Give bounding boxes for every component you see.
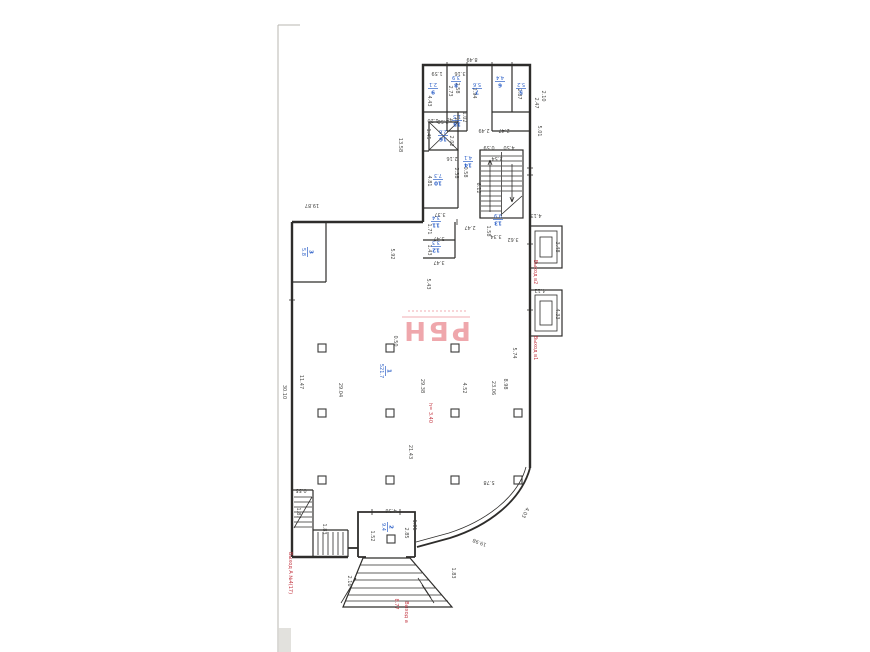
dimension-label: 4.36 xyxy=(385,507,396,513)
dimension-label: 1.43 xyxy=(426,244,432,255)
svg-text:14: 14 xyxy=(464,162,472,168)
svg-text:9.4: 9.4 xyxy=(380,523,386,531)
dimension-label: 2.38 xyxy=(453,167,459,178)
room-label: 151.5 xyxy=(452,113,462,127)
dimension-label: 2.85 xyxy=(403,527,409,538)
dimension-label: 8.49 xyxy=(466,56,477,62)
dimension-label: 30.10 xyxy=(281,385,287,399)
dimension-label: 4.13 xyxy=(530,212,541,218)
red-annotation: Выход а xyxy=(403,601,409,623)
red-annotation: Выход А №4(17) xyxy=(287,552,293,594)
svg-text:1: 1 xyxy=(386,369,392,373)
walls-upper-block xyxy=(293,65,530,282)
svg-text:3.3: 3.3 xyxy=(432,239,440,245)
svg-text:4.4: 4.4 xyxy=(496,74,504,80)
room-label: 1521.7 xyxy=(378,364,392,378)
corner-staircase xyxy=(292,490,348,557)
dimension-label: 29.38 xyxy=(419,379,425,393)
svg-text:521.7: 521.7 xyxy=(378,364,384,378)
red-annotation: Выход в1 xyxy=(532,336,538,361)
svg-text:7.3: 7.3 xyxy=(434,172,442,178)
dimension-label: 1.20 xyxy=(427,117,438,123)
dimension-label: 0.50 xyxy=(392,335,398,346)
dimension-label: 5.92 xyxy=(389,248,395,259)
dimension-label: 1.45 xyxy=(425,128,431,139)
svg-text:10: 10 xyxy=(434,180,442,186)
svg-text:2.1: 2.1 xyxy=(429,81,437,87)
hall-columns xyxy=(318,344,522,543)
svg-text:5.2: 5.2 xyxy=(517,81,525,87)
svg-text:6: 6 xyxy=(498,82,502,88)
dimension-label: 2.47 xyxy=(533,97,539,108)
svg-text:13: 13 xyxy=(494,220,502,226)
dimension-label: 2.54 xyxy=(491,155,502,161)
dimension-label: 2.58 xyxy=(437,118,448,124)
dimension-label: 1.71 xyxy=(426,223,432,234)
room-label: 123.3 xyxy=(431,239,441,253)
svg-text:5.6: 5.6 xyxy=(473,81,481,87)
dimension-label: 6.12 xyxy=(475,182,481,193)
dimension-label: 4.12 xyxy=(534,287,545,293)
dimension-label: 2.47 xyxy=(498,127,509,133)
column-marker xyxy=(386,409,394,417)
svg-text:2.6: 2.6 xyxy=(439,128,447,134)
dimension-label: 11.47 xyxy=(298,375,304,389)
dimension-label: 2.73 xyxy=(447,85,453,96)
column-marker xyxy=(386,476,394,484)
svg-text:9: 9 xyxy=(431,89,435,95)
svg-text:7: 7 xyxy=(475,89,479,95)
room-label: 144.1 xyxy=(463,154,473,168)
stair-arrow-down-icon xyxy=(510,164,514,202)
dimension-label: 4.81 xyxy=(426,175,432,186)
svg-text:2: 2 xyxy=(388,525,394,529)
scanned-floor-plan-page: РБН 8.4913.5819.8730.1011.471.593.164.43… xyxy=(0,0,870,652)
room-label: 162.6 xyxy=(438,128,448,142)
red-stamp: РБН xyxy=(401,311,471,345)
column-marker xyxy=(451,409,459,417)
svg-text:3.9: 3.9 xyxy=(452,74,460,80)
dimension-label: 29.04 xyxy=(337,383,343,397)
dimension-label: 19.98 xyxy=(472,537,488,548)
floor-plan-svg: РБН 8.4913.5819.8730.1011.471.593.164.43… xyxy=(0,0,870,652)
dimension-label: 13.58 xyxy=(397,138,403,152)
red-annotations: h= 3.408.77Выход аВыход А №4(17)Выход в2… xyxy=(287,260,538,623)
dimension-label: 0.55 xyxy=(295,487,306,493)
column-marker xyxy=(514,409,522,417)
dimension-label: 1.83 xyxy=(450,567,456,578)
dimension-label: 8.98 xyxy=(502,378,508,389)
svg-text:9.9: 9.9 xyxy=(494,212,502,218)
dimension-label: 1.59 xyxy=(431,70,442,76)
room-label: 35.8 xyxy=(300,247,314,257)
room-label: 92.1 xyxy=(428,81,438,95)
dimension-label: 2.47 xyxy=(464,224,475,230)
scan-smudge xyxy=(278,628,291,652)
stamp-text: РБН xyxy=(401,315,471,345)
dimension-label: 2.49 xyxy=(478,127,489,133)
red-annotation: 8.77 xyxy=(393,598,399,609)
dimension-label: 2.10 xyxy=(540,90,546,101)
svg-text:5: 5 xyxy=(519,89,523,95)
room-label: 29.4 xyxy=(380,522,394,532)
dimension-label: 1.52 xyxy=(369,530,375,541)
dimension-label: 4.03 xyxy=(520,506,530,519)
svg-text:15: 15 xyxy=(453,121,461,127)
dimension-label: 2.02 xyxy=(448,135,454,146)
dimension-label: 5.78 xyxy=(483,479,494,485)
room-label: 107.3 xyxy=(433,172,443,186)
svg-text:12: 12 xyxy=(432,247,440,253)
column-marker xyxy=(318,409,326,417)
dimension-label: 4.52 xyxy=(461,382,467,393)
red-annotation: Выход в2 xyxy=(532,260,538,285)
dimension-label: 5.43 xyxy=(425,278,431,289)
svg-text:16: 16 xyxy=(439,136,447,142)
svg-text:1.5: 1.5 xyxy=(453,113,461,119)
column-marker xyxy=(387,535,395,543)
dimension-label: 19.87 xyxy=(305,202,319,208)
room-label: 64.4 xyxy=(495,74,505,88)
dimension-label: 3.48 xyxy=(554,241,560,252)
dimension-label: 2.16 xyxy=(446,155,457,161)
dimension-label: 3.34 xyxy=(490,233,501,239)
dimension-label: 1.58 xyxy=(485,225,491,236)
room-number-labels: 1521.729.435.892.183.975.664.455.2151.51… xyxy=(300,74,526,532)
column-marker xyxy=(318,344,326,352)
dimension-label: 5.74 xyxy=(511,347,517,358)
svg-text:3.4: 3.4 xyxy=(432,214,440,220)
dimension-label: 2.16 xyxy=(346,575,352,586)
svg-text:5.8: 5.8 xyxy=(300,248,306,256)
dimension-label: 21.43 xyxy=(407,445,413,459)
dimension-label: 3.62 xyxy=(507,236,518,242)
svg-text:4.1: 4.1 xyxy=(464,154,472,160)
dimension-label: 5.01 xyxy=(536,125,542,136)
svg-text:3: 3 xyxy=(308,250,314,254)
room-label: 139.9 xyxy=(493,212,503,226)
dimension-label: 4.33 xyxy=(554,308,560,319)
column-marker xyxy=(318,476,326,484)
dimension-label: 1.87 xyxy=(295,507,301,518)
svg-text:8: 8 xyxy=(454,82,458,88)
dimension-label: 1.01 xyxy=(411,519,417,530)
dimension-label: 4.50 xyxy=(503,144,514,150)
dimension-label: 3.47 xyxy=(433,259,444,265)
room-label: 113.4 xyxy=(431,214,441,228)
dimension-label: 4.43 xyxy=(426,95,432,106)
dimension-label: 1.83 xyxy=(321,523,327,534)
dimension-label: 23.06 xyxy=(490,381,496,395)
column-marker xyxy=(451,476,459,484)
svg-text:11: 11 xyxy=(432,222,440,228)
red-annotation: h= 3.40 xyxy=(427,403,433,423)
dimension-label: 0.59 xyxy=(483,144,494,150)
